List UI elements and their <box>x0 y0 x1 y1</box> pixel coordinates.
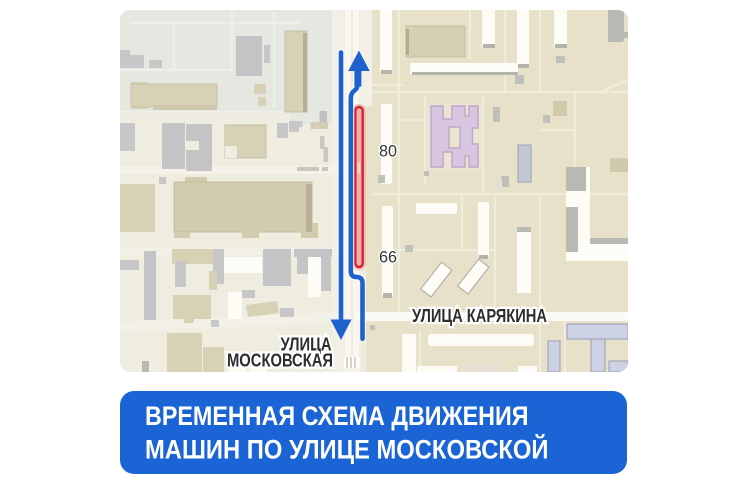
svg-text:ВРЕМЕННАЯ СХЕМА ДВИЖЕНИЯ: ВРЕМЕННАЯ СХЕМА ДВИЖЕНИЯ <box>145 401 529 431</box>
svg-text:МАШИН ПО УЛИЦЕ МОСКОВСКОЙ: МАШИН ПО УЛИЦЕ МОСКОВСКОЙ <box>145 434 549 465</box>
